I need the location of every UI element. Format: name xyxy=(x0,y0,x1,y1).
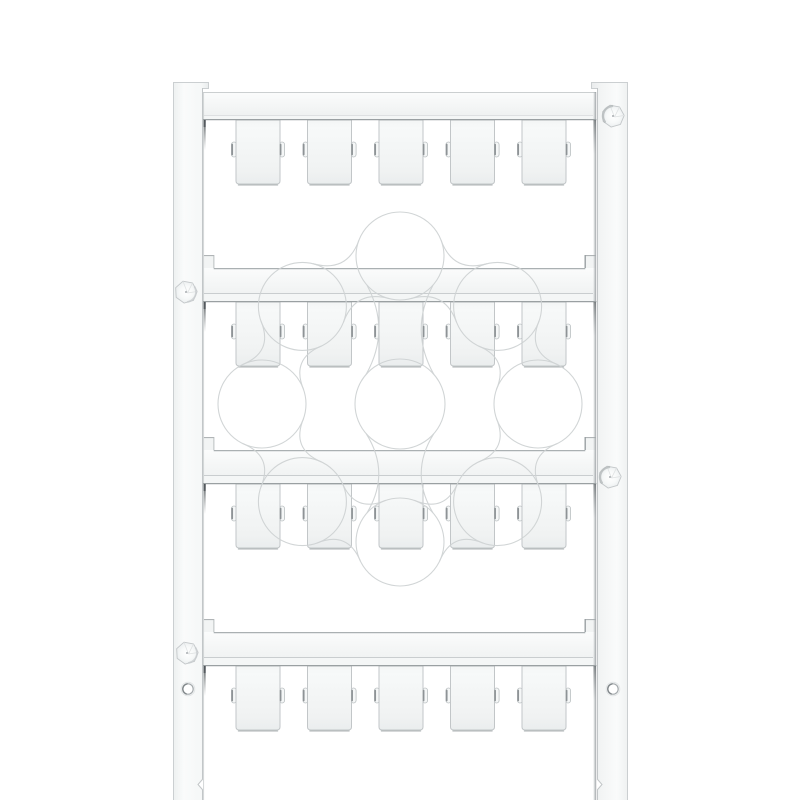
marker-row-2 xyxy=(231,302,570,367)
pin-center-dot xyxy=(609,476,611,478)
tag-body xyxy=(522,666,566,730)
marker-row-4 xyxy=(231,666,570,731)
pin-center-dot xyxy=(185,291,187,293)
marker-tag xyxy=(517,666,570,731)
break-web-left xyxy=(204,437,214,450)
marker-tag xyxy=(374,666,427,731)
marker-tag xyxy=(446,666,499,731)
tag-body xyxy=(451,120,495,184)
tag-body xyxy=(236,484,280,548)
pin-center-dot xyxy=(612,115,614,117)
watermark-circle xyxy=(494,360,582,448)
marker-tag xyxy=(374,302,427,367)
bar-strip xyxy=(204,658,593,665)
window-corner-wedge-right xyxy=(593,666,596,700)
tag-body xyxy=(308,302,352,366)
marker-tag xyxy=(374,120,427,185)
tag-body xyxy=(379,120,423,184)
card-bar-row-2 xyxy=(203,255,596,302)
marker-tag xyxy=(303,666,356,731)
window-corner-wedge-right xyxy=(593,484,596,518)
tag-body xyxy=(379,484,423,548)
watermark-circle xyxy=(355,359,445,449)
tag-body xyxy=(451,666,495,730)
mounting-hole xyxy=(606,682,620,696)
marker-tag xyxy=(231,302,284,367)
tag-body xyxy=(308,120,352,184)
tag-body xyxy=(308,484,352,548)
tag-body xyxy=(308,666,352,730)
marker-tag xyxy=(303,120,356,185)
window-corner-wedge-right xyxy=(593,302,596,336)
watermark-neck xyxy=(441,240,487,266)
window-corner-wedge-right xyxy=(593,120,596,154)
marker-tag xyxy=(517,120,570,185)
tag-body xyxy=(236,666,280,730)
watermark-circle xyxy=(218,360,306,448)
tag-body xyxy=(379,302,423,366)
tag-body xyxy=(236,302,280,366)
marker-row-1 xyxy=(231,120,570,185)
mounting-hole xyxy=(181,682,195,696)
product-photo-canvas xyxy=(0,0,800,800)
break-web-left xyxy=(204,619,214,632)
card-bar-row-1 xyxy=(203,92,596,120)
marker-tag xyxy=(231,666,284,731)
marker-tag xyxy=(517,484,570,549)
marker-tag xyxy=(231,484,284,549)
tag-body xyxy=(379,666,423,730)
pin-center-dot xyxy=(186,652,188,654)
terminal-marker-card-photo xyxy=(0,0,800,800)
tag-body xyxy=(522,484,566,548)
bar-strip xyxy=(204,116,593,119)
break-web-left xyxy=(204,255,214,268)
card-bar-row-4 xyxy=(203,619,596,666)
tag-body xyxy=(451,302,495,366)
tag-body xyxy=(236,120,280,184)
marker-tag xyxy=(374,484,427,549)
watermark-neck xyxy=(313,240,359,266)
tag-body xyxy=(522,120,566,184)
marker-tag xyxy=(446,120,499,185)
marker-tag xyxy=(231,120,284,185)
